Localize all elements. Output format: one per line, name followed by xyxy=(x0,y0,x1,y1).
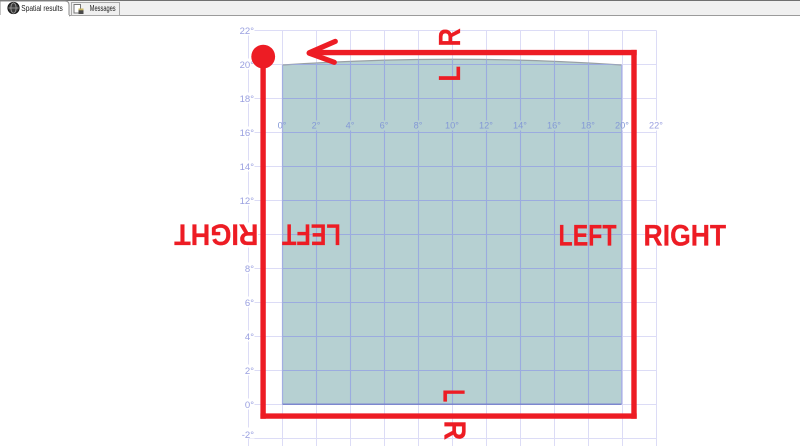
svg-text:16°: 16° xyxy=(240,128,255,139)
svg-text:12°: 12° xyxy=(479,120,493,130)
svg-text:20°: 20° xyxy=(615,120,629,130)
svg-text:18°: 18° xyxy=(581,120,595,130)
svg-text:LEFT: LEFT xyxy=(559,218,617,252)
svg-text:22°: 22° xyxy=(240,26,255,37)
svg-text:Spatial results: Spatial results xyxy=(21,3,63,13)
svg-text:4°: 4° xyxy=(346,120,355,130)
svg-text:14°: 14° xyxy=(240,162,255,173)
svg-text:RIGHT: RIGHT xyxy=(174,217,259,251)
svg-text:16°: 16° xyxy=(547,120,561,130)
svg-text:R: R xyxy=(437,421,471,440)
svg-text:Messages: Messages xyxy=(90,3,116,13)
svg-text:6°: 6° xyxy=(245,298,254,309)
svg-text:L: L xyxy=(437,389,472,402)
svg-text:8°: 8° xyxy=(245,264,254,275)
svg-text:18°: 18° xyxy=(240,94,255,105)
svg-text:12°: 12° xyxy=(240,196,255,207)
svg-text:LEFT: LEFT xyxy=(282,218,341,251)
svg-text:2°: 2° xyxy=(245,366,254,377)
svg-text:6°: 6° xyxy=(380,120,389,130)
svg-text:4°: 4° xyxy=(245,332,254,343)
svg-text:10°: 10° xyxy=(445,120,459,130)
svg-text:20°: 20° xyxy=(240,60,255,71)
svg-text:R: R xyxy=(432,28,467,46)
svg-text:14°: 14° xyxy=(513,120,527,130)
svg-text:-2°: -2° xyxy=(242,430,254,441)
svg-text:L: L xyxy=(433,66,468,82)
svg-text:2°: 2° xyxy=(312,120,321,130)
svg-text:8°: 8° xyxy=(414,120,423,130)
svg-text:0°: 0° xyxy=(245,400,254,411)
svg-text:RIGHT: RIGHT xyxy=(644,219,727,253)
svg-text:22°: 22° xyxy=(649,120,663,130)
svg-text:0°: 0° xyxy=(278,120,287,130)
